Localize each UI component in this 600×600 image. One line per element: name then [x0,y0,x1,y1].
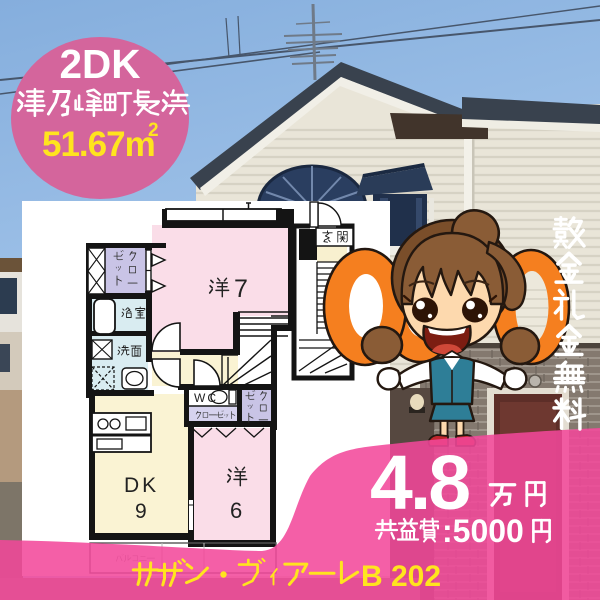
svg-text::5000: :5000 [442,513,524,549]
svg-text:6: 6 [230,498,242,523]
svg-text:2: 2 [148,120,159,141]
svg-text:7: 7 [234,275,248,303]
svg-text:9: 9 [135,500,147,523]
svg-text:DK: DK [124,474,159,497]
svg-text:51.67m: 51.67m [42,125,155,164]
svg-text:B 202: B 202 [361,560,441,593]
svg-text:2DK: 2DK [59,41,140,87]
svg-text:WC: WC [194,391,218,405]
